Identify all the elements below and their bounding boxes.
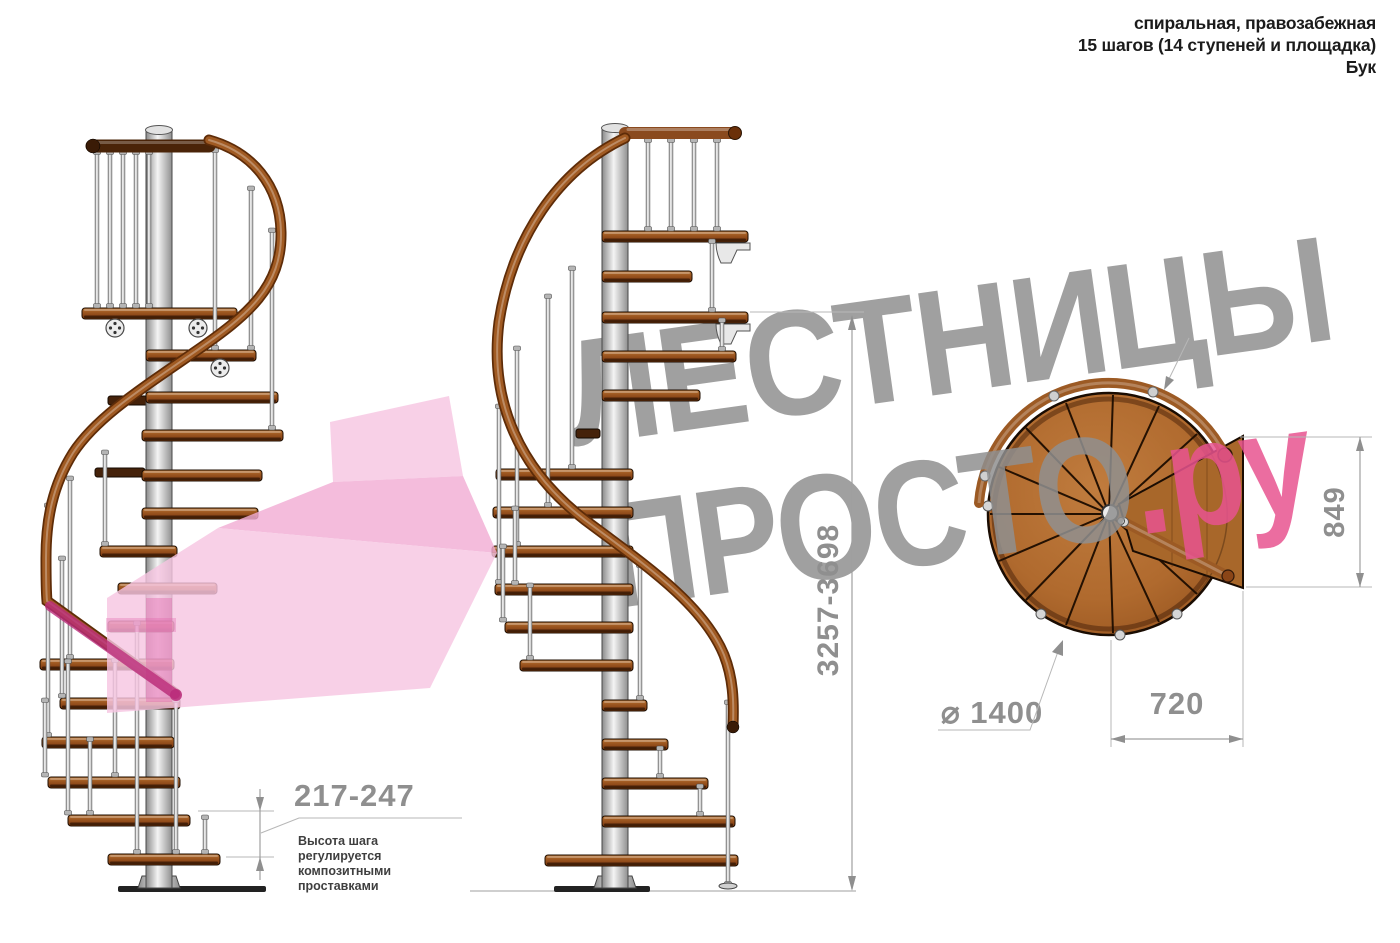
note-line3: композитными [298,864,391,878]
title-steps: 15 шагов (14 ступеней и площадка) [1078,34,1376,56]
dimension-platform-width: 720 [1111,591,1243,747]
dimension-platform-height: 849 [1240,437,1372,587]
annotations: 3257-3698 217-247 Высота шага регулирует… [0,0,1400,943]
step-height-label: 217-247 [294,778,415,813]
note-line2: регулируется [298,849,381,863]
platform-width-label: 720 [1150,686,1205,721]
platform-height-label: 849 [1319,486,1351,537]
handrail-callout-arrow [1164,338,1189,390]
note-line4: проставками [298,879,379,893]
title-block: спиральная, правозабежная 15 шагов (14 с… [1078,12,1376,78]
title-type: спиральная, правозабежная [1078,12,1376,34]
total-height-label: 3257-3698 [812,524,845,676]
drawing-canvas: ЛЕСТНИЦЫ ПРОСТО.ру [0,0,1400,943]
dimension-total-height: 3257-3698 [750,312,864,891]
note-line1: Высота шага [298,834,379,848]
note-step-height: Высота шага регулируется композитными пр… [298,834,391,893]
dimension-diameter: ⌀ 1400 [938,640,1063,730]
title-material: Бук [1078,56,1376,78]
diameter-label: ⌀ 1400 [941,695,1043,730]
